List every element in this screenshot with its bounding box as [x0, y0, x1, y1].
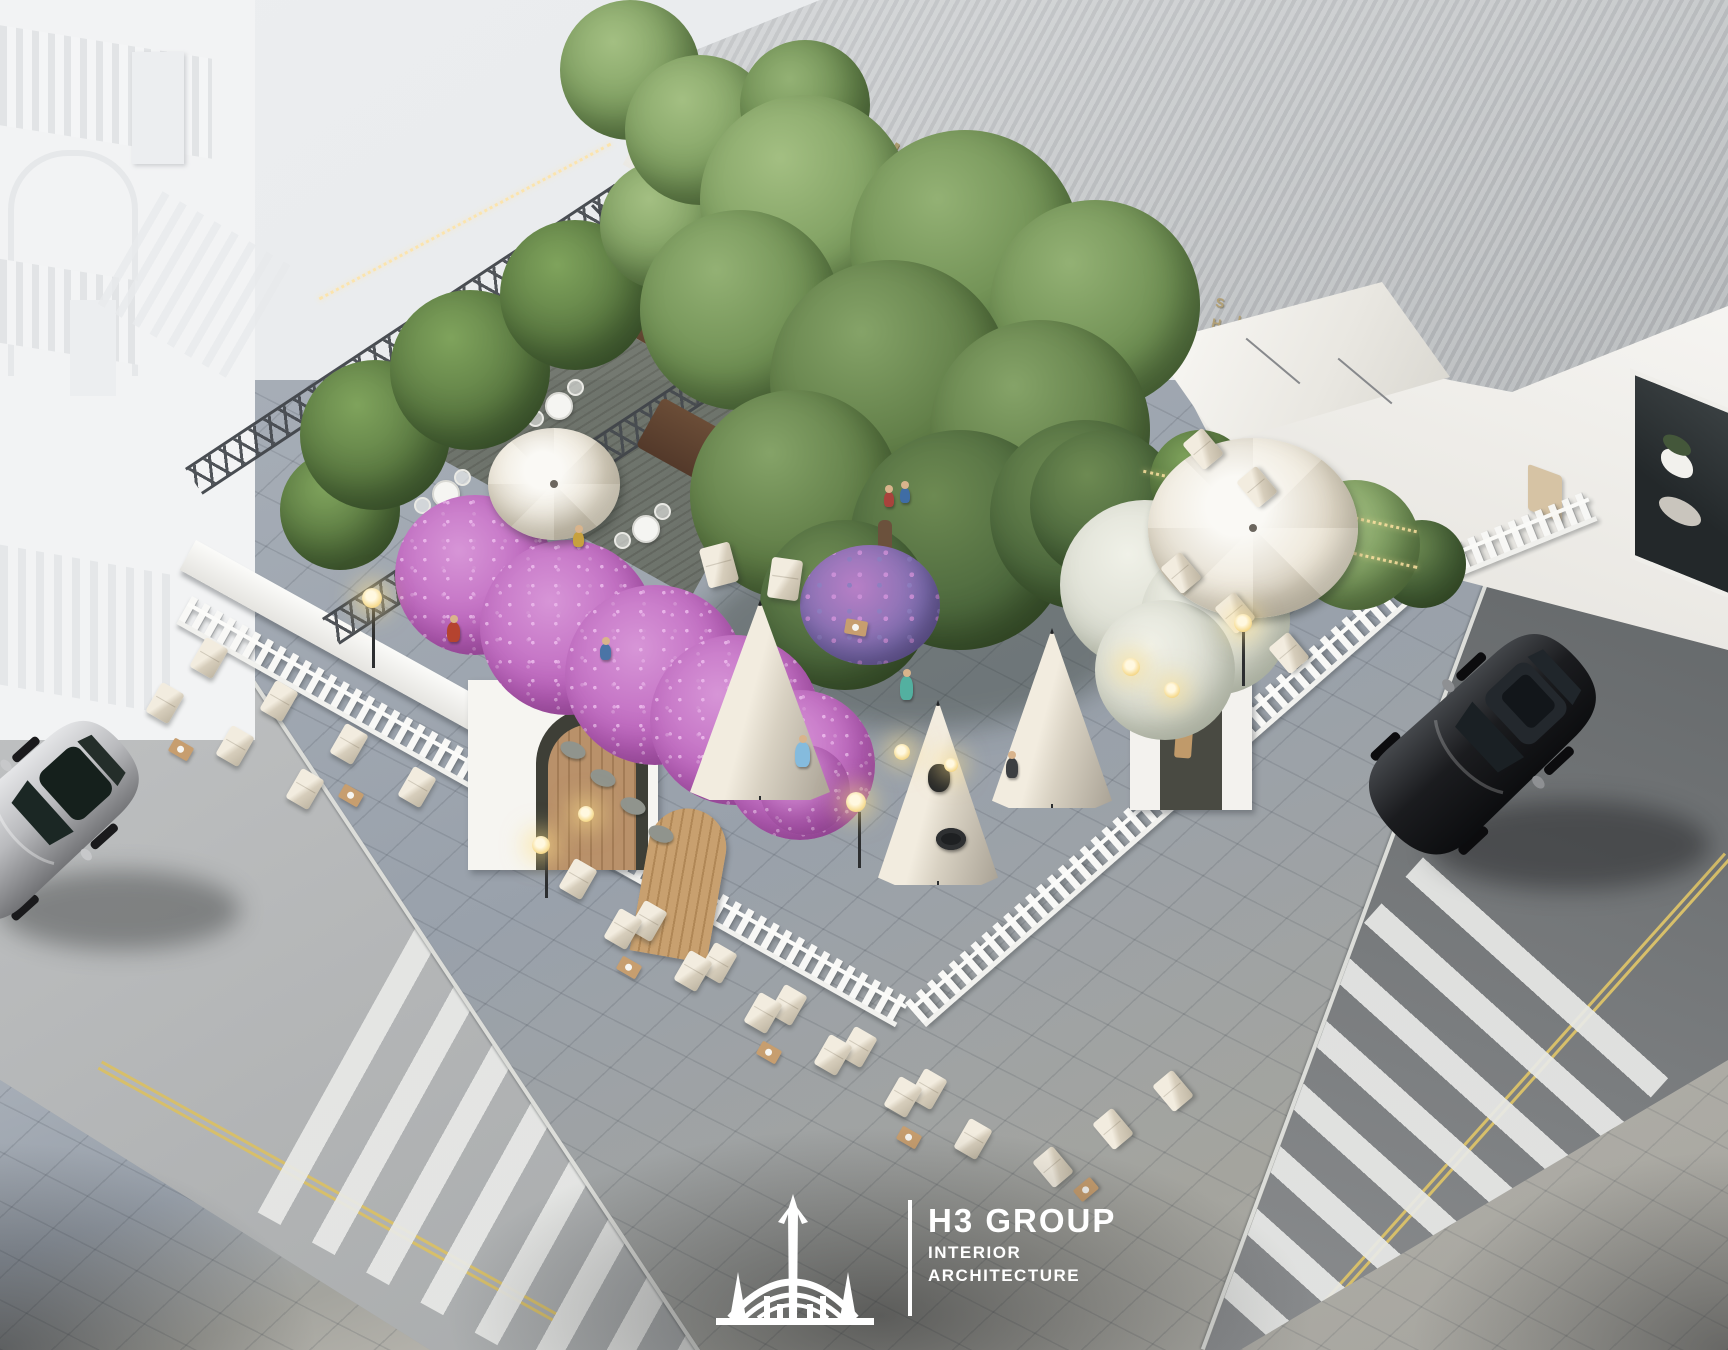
cafe-table: [632, 515, 660, 543]
logo-text-block: H3 GROUP INTERIOR ARCHITECTURE: [928, 1202, 1116, 1286]
globe-lamp: [578, 806, 594, 822]
person-standing: [1006, 758, 1018, 778]
white-blossom-tree: [1095, 600, 1235, 740]
person-sitting: [600, 644, 611, 660]
ghost-pillar-lower: [70, 300, 116, 396]
person-walking: [795, 742, 810, 767]
person-walking: [900, 676, 913, 700]
person-sitting: [900, 488, 910, 503]
globe-lamp: [1164, 682, 1180, 698]
vignette-bottom-right: [1408, 1150, 1728, 1350]
person-sitting: [884, 492, 894, 507]
round-umbrella-small: [488, 428, 620, 540]
h3-logo-mark-icon: [700, 1180, 890, 1340]
globe-lamp: [532, 836, 550, 854]
window-stone: [1659, 491, 1701, 532]
globe-lamp: [894, 744, 910, 760]
aerial-cafe-render: SHAN - LAA SHAN LAA: [0, 0, 1728, 1350]
lamp-post: [545, 852, 548, 898]
flower-bed: [800, 545, 940, 665]
wire-chair: [567, 379, 584, 396]
globe-lamp: [846, 792, 866, 812]
globe-lamp: [362, 588, 382, 608]
black-ring-bin: [936, 828, 966, 850]
person-sitting: [447, 622, 460, 642]
person-sitting: [573, 532, 584, 547]
logo-line1: INTERIOR: [928, 1243, 1116, 1263]
lamp-post: [372, 608, 375, 668]
globe-lamp: [1234, 614, 1252, 632]
globe-lamp: [944, 758, 958, 772]
sling-chair: [767, 557, 804, 602]
vignette-bottom-left: [0, 1140, 320, 1350]
h3-group-logo: H3 GROUP INTERIOR ARCHITECTURE: [700, 1180, 1170, 1350]
ghost-balustrade-lower: [0, 545, 175, 716]
wire-chair: [454, 469, 471, 486]
wire-chair: [654, 503, 671, 520]
ghost-pillar: [132, 52, 184, 164]
logo-line2: ARCHITECTURE: [928, 1266, 1116, 1286]
cafe-table: [545, 392, 573, 420]
logo-divider: [908, 1200, 912, 1316]
wire-chair: [614, 532, 631, 549]
globe-lamp: [1122, 658, 1140, 676]
logo-brand: H3 GROUP: [928, 1202, 1116, 1240]
lamp-post: [858, 812, 861, 868]
lamp-post: [1242, 632, 1245, 686]
